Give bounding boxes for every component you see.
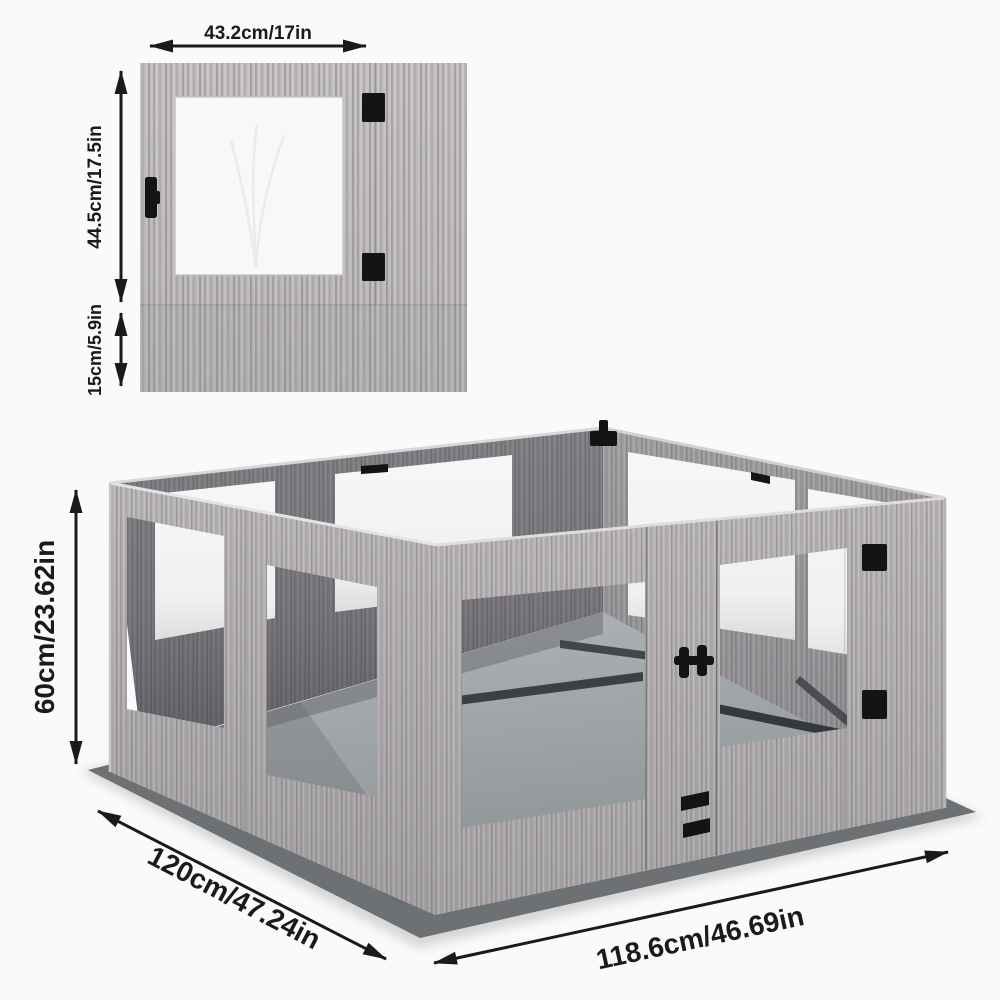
panel-skirt: [140, 305, 467, 392]
assembled-width-label: 118.6cm/46.69in: [593, 900, 806, 975]
panel-hinge-icon: [362, 93, 385, 122]
dimension-diagram: 43.2cm/17in 44.5cm/17.5in 15cm/5.9in 60c…: [0, 0, 1000, 1000]
assembled-playpen-view: [80, 420, 984, 948]
panel-front-view: [140, 63, 467, 392]
door-seam: [716, 520, 717, 855]
panel-height-label: 44.5cm/17.5in: [85, 125, 106, 249]
diagram-canvas: 43.2cm/17in 44.5cm/17.5in 15cm/5.9in 60c…: [0, 0, 1000, 1000]
panel-joint-seam: [244, 509, 245, 830]
corner-clamp-icon: [590, 420, 617, 446]
panel-joint-seam: [844, 508, 845, 829]
side-hinge-icon: [862, 544, 887, 571]
panel-window: [175, 97, 343, 275]
door-seam: [646, 527, 647, 869]
skirt-height-label: 15cm/5.9in: [85, 304, 105, 396]
panel-hinge-icon: [362, 253, 385, 281]
side-hinge-icon: [862, 690, 887, 719]
panel-width-label: 43.2cm/17in: [204, 23, 312, 44]
assembled-height-label: 60cm/23.62in: [29, 540, 60, 714]
